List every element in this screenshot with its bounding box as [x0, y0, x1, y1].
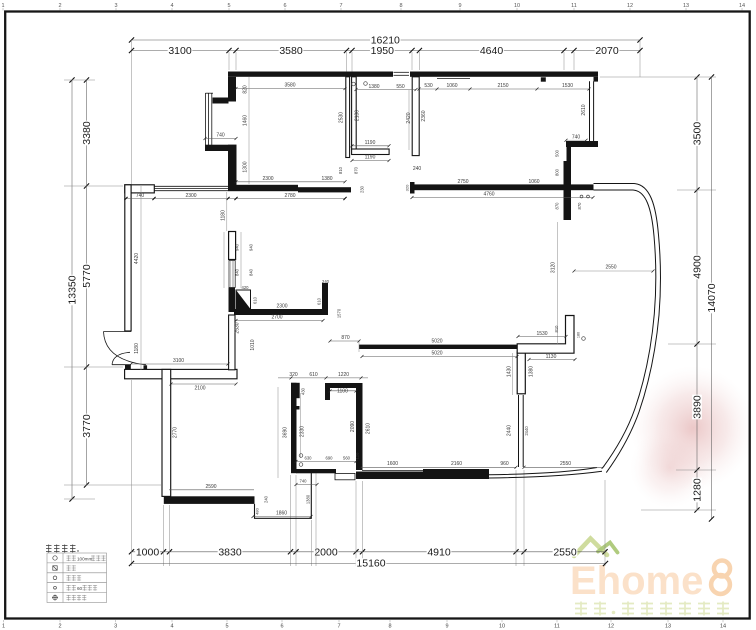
svg-text:3580: 3580 [279, 45, 303, 57]
svg-text:870: 870 [341, 335, 350, 341]
svg-text:4900: 4900 [692, 255, 704, 279]
svg-text:2530: 2530 [339, 112, 345, 123]
svg-text:740: 740 [300, 479, 308, 484]
svg-text:870: 870 [354, 166, 359, 174]
svg-text:430: 430 [301, 387, 306, 395]
svg-text:2530: 2530 [235, 322, 241, 333]
svg-text:940: 940 [249, 243, 254, 251]
svg-text:2440: 2440 [524, 426, 529, 436]
svg-text:940: 940 [235, 243, 240, 251]
svg-text:960: 960 [500, 461, 509, 467]
svg-text:2550: 2550 [605, 265, 616, 271]
svg-text:2000: 2000 [314, 546, 338, 558]
svg-text:3580: 3580 [284, 83, 295, 89]
svg-text:610: 610 [309, 372, 318, 378]
svg-text:1180: 1180 [134, 343, 140, 354]
svg-text:3100: 3100 [173, 358, 184, 364]
svg-text:420: 420 [242, 285, 250, 290]
svg-text:2070: 2070 [595, 45, 619, 57]
svg-text:1860: 1860 [276, 511, 287, 517]
svg-text:13350: 13350 [67, 275, 79, 304]
svg-text:1100: 1100 [337, 388, 348, 394]
svg-text:4910: 4910 [427, 546, 451, 558]
svg-text:8: 8 [388, 624, 391, 630]
svg-text:2610: 2610 [366, 423, 372, 434]
svg-text:2300: 2300 [262, 176, 273, 182]
svg-text:1430: 1430 [507, 366, 513, 377]
svg-text:610: 610 [253, 296, 258, 304]
svg-text:3890: 3890 [692, 395, 704, 419]
svg-text:3690: 3690 [283, 427, 289, 438]
svg-text:2: 2 [58, 624, 61, 630]
svg-text:870: 870 [555, 202, 560, 210]
svg-text:690: 690 [326, 456, 334, 461]
svg-text:2300: 2300 [185, 193, 196, 199]
svg-text:3380: 3380 [81, 121, 93, 145]
svg-text:480: 480 [255, 507, 260, 514]
svg-text:4760: 4760 [483, 192, 494, 198]
svg-text:1530: 1530 [536, 331, 547, 337]
svg-text:560: 560 [343, 456, 351, 461]
svg-text:1060: 1060 [446, 83, 457, 89]
svg-text:2420: 2420 [406, 112, 412, 123]
svg-text:2780: 2780 [284, 193, 295, 199]
svg-text:230: 230 [360, 185, 365, 193]
svg-text:1220: 1220 [338, 372, 349, 378]
svg-text:740: 740 [572, 135, 581, 141]
svg-text:550: 550 [396, 84, 405, 90]
svg-text:3500: 3500 [692, 122, 704, 146]
svg-text:1180: 1180 [221, 210, 227, 221]
svg-text:1380: 1380 [306, 494, 311, 504]
svg-text:180: 180 [577, 332, 581, 338]
svg-text:1300: 1300 [243, 161, 249, 172]
svg-text:1950: 1950 [371, 45, 395, 57]
svg-text:1190: 1190 [365, 155, 376, 161]
svg-text:11: 11 [554, 624, 560, 630]
svg-text:1: 1 [2, 624, 5, 630]
svg-text:530: 530 [424, 83, 433, 89]
svg-text:15160: 15160 [356, 558, 385, 570]
svg-text:6: 6 [280, 624, 283, 630]
svg-text:2550: 2550 [560, 461, 571, 467]
svg-text:2130: 2130 [355, 110, 361, 121]
svg-text:2360: 2360 [421, 110, 427, 121]
svg-text:3830: 3830 [218, 546, 242, 558]
svg-text:740: 740 [216, 133, 225, 139]
svg-text:2550: 2550 [553, 546, 577, 558]
svg-text:1530: 1530 [562, 83, 573, 89]
svg-text:1010: 1010 [250, 339, 256, 350]
svg-text:4420: 4420 [134, 253, 140, 264]
svg-text:3: 3 [114, 624, 117, 630]
svg-text:1380: 1380 [529, 366, 535, 377]
svg-text:320: 320 [289, 372, 298, 378]
svg-text:2300: 2300 [276, 304, 287, 310]
svg-text:60: 60 [77, 586, 83, 591]
svg-text:13: 13 [665, 624, 671, 630]
svg-text:740: 740 [136, 193, 145, 199]
svg-text:320: 320 [405, 184, 410, 191]
svg-text:14: 14 [720, 624, 726, 630]
svg-text:810: 810 [338, 166, 343, 174]
svg-text:12: 12 [608, 624, 614, 630]
svg-text:1600: 1600 [387, 461, 398, 467]
svg-text:1460: 1460 [243, 115, 249, 126]
svg-text:7: 7 [337, 624, 340, 630]
svg-text:2700: 2700 [271, 315, 282, 321]
svg-text:2160: 2160 [451, 461, 462, 467]
svg-text:810: 810 [554, 325, 559, 333]
svg-text:14070: 14070 [706, 283, 718, 312]
svg-text:3770: 3770 [81, 414, 93, 438]
svg-text:1060: 1060 [528, 179, 539, 185]
svg-text:240: 240 [322, 279, 330, 284]
svg-text:2610: 2610 [581, 104, 587, 115]
svg-text:1190: 1190 [365, 140, 376, 146]
svg-text:800: 800 [555, 168, 560, 176]
svg-text:870: 870 [577, 202, 582, 210]
svg-text:630: 630 [305, 456, 313, 461]
svg-text:1570: 1570 [337, 308, 342, 318]
svg-text:500: 500 [555, 149, 560, 157]
svg-text:5770: 5770 [81, 264, 93, 288]
svg-text:10: 10 [499, 624, 505, 630]
svg-text:1380: 1380 [368, 84, 379, 90]
svg-text:610: 610 [317, 297, 322, 305]
svg-text:9: 9 [445, 624, 448, 630]
svg-text:2100: 2100 [194, 386, 205, 392]
svg-text:4: 4 [170, 624, 173, 630]
svg-text:840: 840 [249, 268, 254, 276]
svg-text:2090: 2090 [350, 421, 356, 432]
svg-text:2150: 2150 [497, 83, 508, 89]
svg-text:3120: 3120 [551, 262, 557, 273]
svg-text:Ehome: Ehome [570, 559, 703, 603]
svg-text:2440: 2440 [507, 425, 513, 436]
svg-text:2590: 2590 [205, 484, 216, 490]
svg-text:820: 820 [243, 85, 249, 94]
svg-text:2330: 2330 [300, 426, 306, 437]
svg-text:120: 120 [355, 452, 360, 459]
svg-text:100mm: 100mm [77, 557, 92, 562]
svg-text:840: 840 [235, 268, 240, 276]
svg-text:4640: 4640 [480, 45, 504, 57]
svg-text:2770: 2770 [173, 427, 179, 438]
svg-text:1380: 1380 [321, 176, 332, 182]
svg-text:1280: 1280 [692, 478, 704, 502]
svg-text:240: 240 [264, 495, 269, 503]
svg-text:1130: 1130 [546, 354, 557, 360]
svg-text:1000: 1000 [136, 546, 160, 558]
svg-text:240: 240 [413, 166, 422, 172]
svg-text:5020: 5020 [431, 351, 442, 357]
svg-text:5: 5 [225, 624, 228, 630]
svg-text:2750: 2750 [457, 179, 468, 185]
svg-text:5020: 5020 [431, 339, 442, 345]
svg-text:3100: 3100 [168, 45, 192, 57]
